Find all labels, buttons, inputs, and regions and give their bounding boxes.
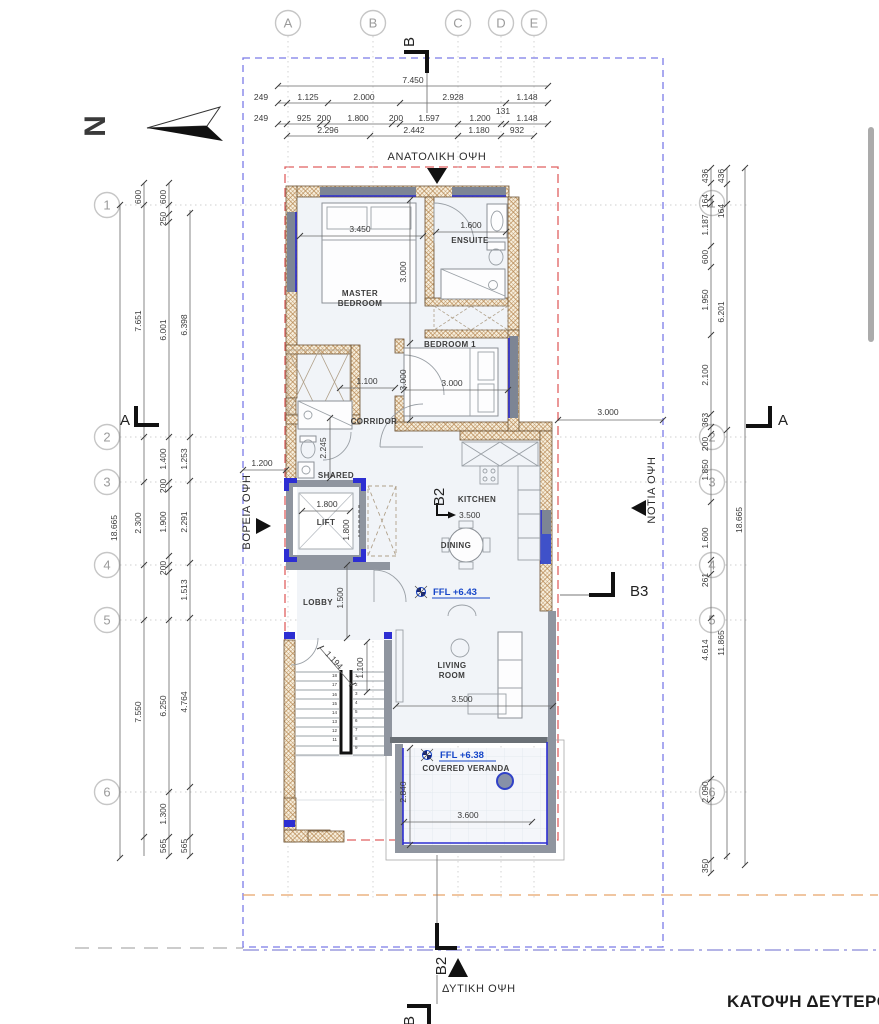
dim-label: 436 (716, 169, 726, 183)
dim-label: 1.200 (251, 458, 273, 468)
stair-number: 13 (332, 719, 338, 724)
dim-chain-top: 7.450 249 1.125 2.000 2.928 1.148 249 92… (254, 75, 551, 139)
grid-bubble-D: D (496, 16, 505, 31)
dim-label: 2.928 (442, 92, 464, 102)
dim-label: 1.800 (347, 113, 369, 123)
north-arrow-upper (147, 107, 220, 128)
ffl-symbol-living (415, 586, 427, 598)
stair-number: 4 (355, 700, 358, 705)
north-elevation-marker: ΒΟΡΕΙΑ ΟΨΗ (241, 474, 271, 549)
south-elevation-label: ΝΟΤΙΑ ΟΨΗ (646, 456, 658, 523)
staircase: 18 17 16 15 14 13 12 11 1 2 3 4 5 6 7 8 … (296, 670, 384, 800)
dim-label: 3.000 (398, 261, 408, 283)
dim-label: 250 (158, 212, 168, 226)
dim-label: 1.253 (179, 448, 189, 470)
dim-label: 200 (317, 113, 331, 123)
dim-label: 164 (700, 194, 710, 208)
dim-label: 436 (700, 169, 710, 183)
dim-label: 600 (133, 190, 143, 204)
dim-label: 600 (700, 250, 710, 264)
dim-label: 2.442 (403, 125, 425, 135)
dim-label: 1.100 (355, 657, 365, 679)
grid-bubble-5: 5 (103, 613, 110, 628)
floor-plan-drawing: N A B C D E 1 2 3 4 5 6 1 2 3 4 5 6 7.45… (0, 0, 879, 1024)
dim-label: 1.800 (316, 499, 338, 509)
grid-bubbles-left: 1 2 3 4 5 6 (95, 193, 120, 805)
room-label-kitchen: KITCHEN (458, 495, 496, 504)
dim-label: 3.450 (349, 224, 371, 234)
dim-label: 1.100 (356, 376, 378, 386)
dim-label: 1.900 (158, 511, 168, 533)
west-elevation-arrow-icon (448, 958, 468, 977)
dim-label: 1.300 (158, 803, 168, 825)
room-label-lobby: LOBBY (303, 598, 333, 607)
dim-label: 2.291 (179, 511, 189, 533)
room-label-veranda: COVERED VERANDA (422, 764, 509, 773)
dim-label: 7.550 (133, 701, 143, 723)
room-label-master-2: BEDROOM (338, 299, 383, 308)
grid-bubble-6: 6 (103, 785, 110, 800)
dim-label: 1.400 (158, 448, 168, 470)
east-elevation-arrow-icon (427, 168, 447, 184)
room-label-ensuite: ENSUITE (451, 236, 489, 245)
stair-number: 12 (332, 728, 338, 733)
dim-label: 1.180 (468, 125, 490, 135)
dim-label: 7.651 (133, 310, 143, 332)
dim-label: 18.665 (109, 515, 119, 541)
room-label-lift: LIFT (317, 518, 335, 527)
dim-label: 1.850 (700, 459, 710, 481)
section-marker-b-bottom: B (401, 975, 437, 1024)
dim-label: 2.000 (353, 92, 375, 102)
room-label-dining: DINING (441, 541, 471, 550)
room-label-corridor: CORRIDOR (351, 417, 398, 426)
dim-label: 350 (700, 859, 710, 873)
dim-label: 925 (297, 113, 311, 123)
dim-label: 2.296 (317, 125, 339, 135)
stair-number: 15 (332, 701, 338, 706)
dim-label: 3.000 (441, 378, 463, 388)
dim-label: 600 (158, 190, 168, 204)
dim-label: 4.764 (179, 691, 189, 713)
east-elevation-label: ΑΝΑΤΟΛΙΚΗ ΟΨΗ (388, 151, 487, 163)
south-elevation-marker: ΝΟΤΙΑ ΟΨΗ (631, 456, 658, 523)
dim-label: 1.148 (516, 113, 538, 123)
grid-bubble-1: 1 (103, 198, 110, 213)
dim-label: 1.600 (700, 527, 710, 549)
grid-bubble-E: E (530, 16, 539, 31)
room-label-living-1: LIVING (437, 661, 466, 670)
stair-number: 16 (332, 692, 338, 697)
dim-label: 4.614 (700, 639, 710, 661)
section-label-a-right: A (778, 412, 788, 429)
dim-label: 565 (158, 839, 168, 853)
section-label-b-top: B (401, 37, 418, 47)
section-marker-b3: B3 (560, 572, 648, 600)
stair-number: 17 (332, 682, 338, 687)
stair-number: 8 (355, 736, 358, 741)
dim-label: 2.245 (318, 437, 328, 459)
dim-label: 249 (254, 113, 268, 123)
stair-number: 3 (355, 691, 358, 696)
dim-label: 2.100 (700, 364, 710, 386)
north-letter: N (79, 115, 112, 137)
dim-label: 1.800 (341, 519, 351, 541)
stair-number: 7 (355, 727, 358, 732)
stair-number: 11 (332, 737, 337, 742)
stair-number: 18 (332, 673, 338, 678)
dim-label: 1.125 (297, 92, 319, 102)
section-marker-a-left: A (120, 406, 159, 429)
room-label-shared: SHARED (318, 471, 354, 480)
dim-label: 363 (700, 413, 710, 427)
dim-label: 1.950 (700, 289, 710, 311)
room-label-living-2: ROOM (439, 671, 466, 680)
dim-label: 6.398 (179, 314, 189, 336)
dim-label: 1.187 (700, 214, 710, 236)
section-marker-b2-bottom: B2 ΔΥΤΙΚΗ ΟΨΗ (433, 855, 516, 995)
dim-label: 1.500 (335, 587, 345, 609)
veranda-floor (404, 748, 547, 845)
dim-label: 1.600 (460, 220, 482, 230)
grid-bubbles-top: A B C D E (276, 11, 547, 36)
dim-label: 200 (158, 561, 168, 575)
grid-bubbles-right: 1 2 3 4 5 6 (700, 191, 725, 805)
dim-label: 932 (510, 125, 524, 135)
dim-chain-left: 18.665 600 7.651 2.300 7.550 600 250 6.0… (109, 180, 193, 861)
dim-label: 131 (496, 106, 510, 116)
dim-label: 1.194 (323, 649, 345, 672)
dim-label: 1.597 (418, 113, 440, 123)
grid-bubble-4: 4 (103, 558, 110, 573)
dim-label: 1.200 (469, 113, 491, 123)
dim-label: 3.500 (451, 694, 473, 704)
stair-number: 14 (332, 710, 338, 715)
section-label-b2-plan: B2 (431, 488, 448, 506)
stair-number: 5 (355, 709, 358, 714)
vertical-scrollbar-thumb[interactable] (868, 127, 874, 342)
grid-bubble-2: 2 (103, 430, 110, 445)
ffl-symbol-veranda (421, 749, 433, 761)
section-marker-a-right: A (746, 406, 788, 429)
grid-bubble-3: 3 (103, 475, 110, 490)
dim-label: 2.300 (133, 512, 143, 534)
dim-label: 200 (389, 113, 403, 123)
dim-label: 7.450 (402, 75, 424, 85)
room-label-bedroom1: BEDROOM 1 (424, 340, 476, 349)
dim-label: 200 (158, 479, 168, 493)
grid-bubble-C: C (453, 16, 462, 31)
dim-label: 2.840 (398, 781, 408, 803)
dim-label: 1.513 (179, 579, 189, 601)
grid-bubble-B: B (369, 16, 378, 31)
dim-label: 6.001 (158, 319, 168, 341)
section-label-b3: B3 (630, 583, 648, 600)
dim-label: 3.600 (457, 810, 479, 820)
dim-label: 2.090 (700, 781, 710, 803)
dim-label: 249 (254, 92, 268, 102)
north-arrow: N (79, 107, 223, 141)
north-elevation-label: ΒΟΡΕΙΑ ΟΨΗ (241, 474, 253, 549)
floor-plan-sheet: N A B C D E 1 2 3 4 5 6 1 2 3 4 5 6 7.45… (0, 0, 879, 1024)
dim-label: 261 (700, 573, 710, 587)
grid-bubble-4r: 4 (708, 558, 715, 573)
dim-label: 6.250 (158, 695, 168, 717)
south-elevation-arrow-icon (631, 500, 646, 516)
north-elevation-arrow-icon (256, 518, 271, 534)
dim-label: 3.000 (597, 407, 619, 417)
dim-label: 3.500 (459, 510, 481, 520)
ffl-label-veranda: FFL +6.38 (440, 750, 484, 761)
grid-bubble-A: A (284, 16, 293, 31)
dim-label: 1.148 (516, 92, 538, 102)
sheet-title: ΚΑΤΟΨΗ ΔΕΥΤΕΡΟΥ Ο (727, 992, 879, 1011)
room-label-master-1: MASTER (342, 289, 378, 298)
master-bed (322, 203, 416, 303)
stair-number: 6 (355, 718, 358, 723)
ffl-label-living: FFL +6.43 (433, 587, 477, 598)
dim-label: 164 (716, 204, 726, 218)
north-arrow-lower (147, 126, 223, 141)
west-elevation-label: ΔΥΤΙΚΗ ΟΨΗ (442, 983, 516, 995)
dim-label: 200 (700, 437, 710, 451)
dim-label: 11.865 (716, 630, 726, 656)
section-label-b-bottom: B (401, 1016, 418, 1024)
dim-label: 6.201 (716, 301, 726, 323)
section-label-b2-bottom: B2 (433, 957, 450, 975)
veranda-column (497, 773, 513, 789)
dim-label: 565 (179, 839, 189, 853)
dim-label: 18.665 (734, 507, 744, 533)
section-label-a-left: A (120, 412, 130, 429)
